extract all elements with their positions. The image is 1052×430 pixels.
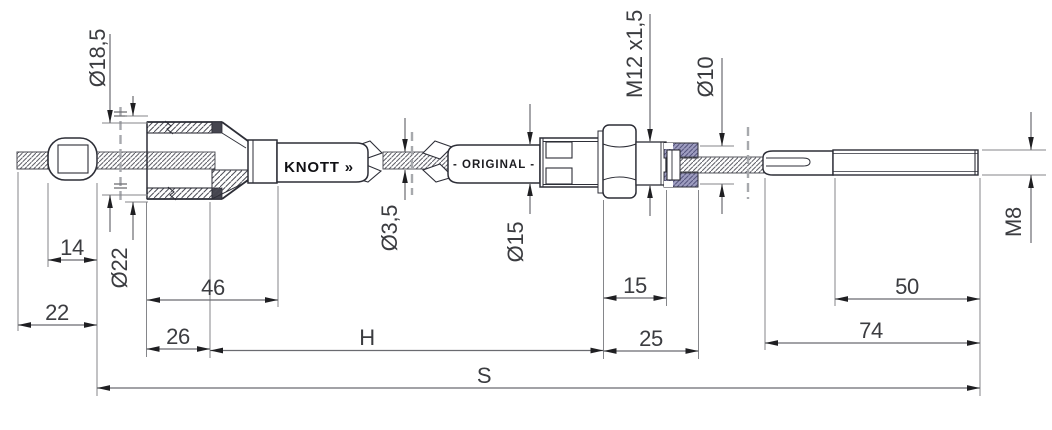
dim-label-m12: M12 x1,5	[622, 10, 647, 98]
dim-label-15: 15	[623, 273, 647, 298]
dim-label-H: H	[359, 325, 375, 350]
dim-label-dia18-5: Ø18,5	[85, 29, 110, 87]
dim-label-46: 46	[201, 275, 225, 300]
dim-label-m8: M8	[1001, 207, 1026, 237]
dim-label-14: 14	[60, 235, 84, 260]
left-wire	[17, 152, 48, 169]
right-wire	[680, 157, 765, 173]
adjuster-cage	[540, 138, 603, 187]
collar	[248, 140, 277, 183]
dim-label-dia15: Ø15	[503, 222, 528, 263]
dim-label-25: 25	[639, 326, 663, 351]
barrel-nipple	[48, 138, 97, 180]
dim-label-dia10: Ø10	[693, 57, 718, 98]
adjuster-shank	[636, 142, 666, 185]
dim-label-dia3-5: Ø3,5	[377, 205, 402, 252]
dim-label-74: 74	[859, 318, 883, 343]
technical-drawing-canvas: KNOTT » - ORIGINAL -	[0, 0, 1052, 430]
dim-label-22: 22	[45, 300, 69, 325]
seal-ring-top	[212, 122, 222, 133]
hex-nut	[598, 125, 636, 198]
knott-sleeve: KNOTT »	[277, 141, 382, 182]
swaged-fitting	[763, 151, 833, 175]
dim-label-26: 26	[166, 324, 190, 349]
sleeve-marking: - ORIGINAL -	[453, 159, 535, 171]
wire-in-housing	[97, 152, 215, 169]
cable-assembly: KNOTT » - ORIGINAL -	[17, 121, 978, 200]
dim-label-50: 50	[895, 274, 919, 299]
dim-label-S: S	[477, 363, 491, 388]
cage-slot-bottom	[546, 168, 572, 184]
threaded-rod	[833, 150, 978, 175]
cage-slot-top	[546, 142, 572, 158]
brand-logo: KNOTT »	[284, 159, 354, 176]
wire-stop-cup	[667, 150, 680, 180]
dim-label-dia22: Ø22	[107, 248, 132, 289]
bowden-cable-drawing: KNOTT » - ORIGINAL -	[0, 0, 1052, 430]
